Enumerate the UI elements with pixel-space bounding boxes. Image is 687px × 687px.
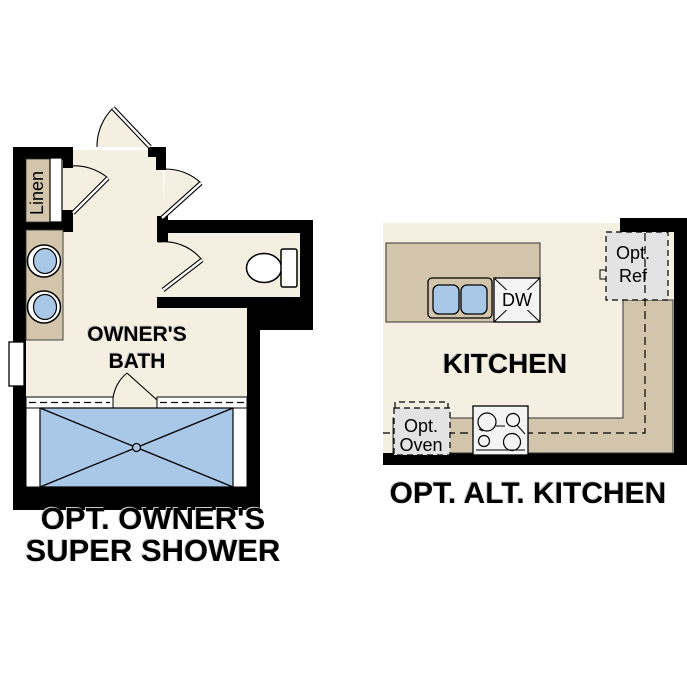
kitchen-sink xyxy=(428,278,492,318)
opt-oven-label-line1: Opt. xyxy=(404,416,438,436)
opt-fridge-label-line2: Ref xyxy=(619,266,648,286)
alt-kitchen-plan: DW Opt. Oven Opt. Ref KITCHEN OPT. ALT. … xyxy=(383,218,687,510)
shower-door-gap xyxy=(113,397,157,409)
shower-ledge-left xyxy=(26,408,40,487)
super-shower xyxy=(26,397,247,487)
shower-glass-right xyxy=(157,397,247,408)
opt-oven-label-line2: Oven xyxy=(399,435,442,455)
bath-plan-title-line2: SUPER SHOWER xyxy=(26,533,281,568)
floorplan-image: Linen xyxy=(0,0,687,687)
vanity xyxy=(26,230,63,340)
range-cooktop xyxy=(473,406,528,455)
sink-water-1 xyxy=(34,249,57,274)
sink-bowl-left xyxy=(433,285,459,314)
owners-bath-plan: Linen xyxy=(9,108,313,568)
kitchen-plan-title: OPT. ALT. KITCHEN xyxy=(390,477,667,510)
dishwasher-label: DW xyxy=(502,290,532,310)
bath-plan-title-line1: OPT. OWNER'S xyxy=(41,501,265,536)
owners-bath-label-line2: BATH xyxy=(109,350,166,373)
bath-floor-lower xyxy=(163,308,247,398)
shower-drain xyxy=(133,444,141,452)
shower-ledge-right xyxy=(233,408,247,487)
floorplan-canvas: Linen xyxy=(0,0,687,687)
owners-bath-label-line1: OWNER'S xyxy=(87,323,187,346)
dishwasher: DW xyxy=(494,278,540,322)
linen-label: Linen xyxy=(27,171,47,215)
opt-fridge-label-line1: Opt. xyxy=(616,243,650,263)
sink-water-2 xyxy=(34,295,57,320)
toilet-tank xyxy=(281,249,297,287)
linen-door xyxy=(50,158,62,222)
opt-oven: Opt. Oven xyxy=(394,402,450,455)
sink-bowl-right xyxy=(461,285,487,314)
window xyxy=(9,342,24,386)
kitchen-label: KITCHEN xyxy=(443,348,567,379)
toilet-bowl xyxy=(247,254,282,283)
